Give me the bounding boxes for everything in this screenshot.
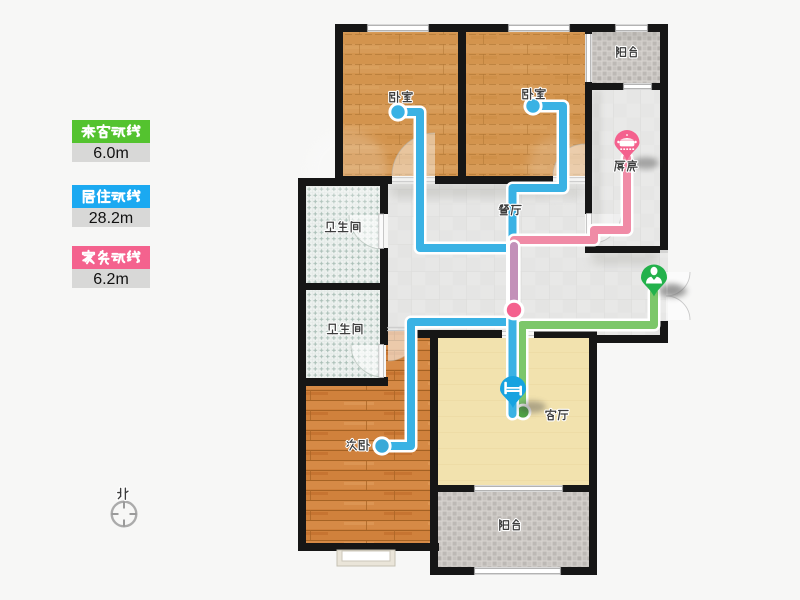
svg-text:28.2m: 28.2m (89, 210, 133, 227)
svg-text:6.2m: 6.2m (93, 271, 129, 288)
svg-text:6.0m: 6.0m (93, 145, 129, 162)
